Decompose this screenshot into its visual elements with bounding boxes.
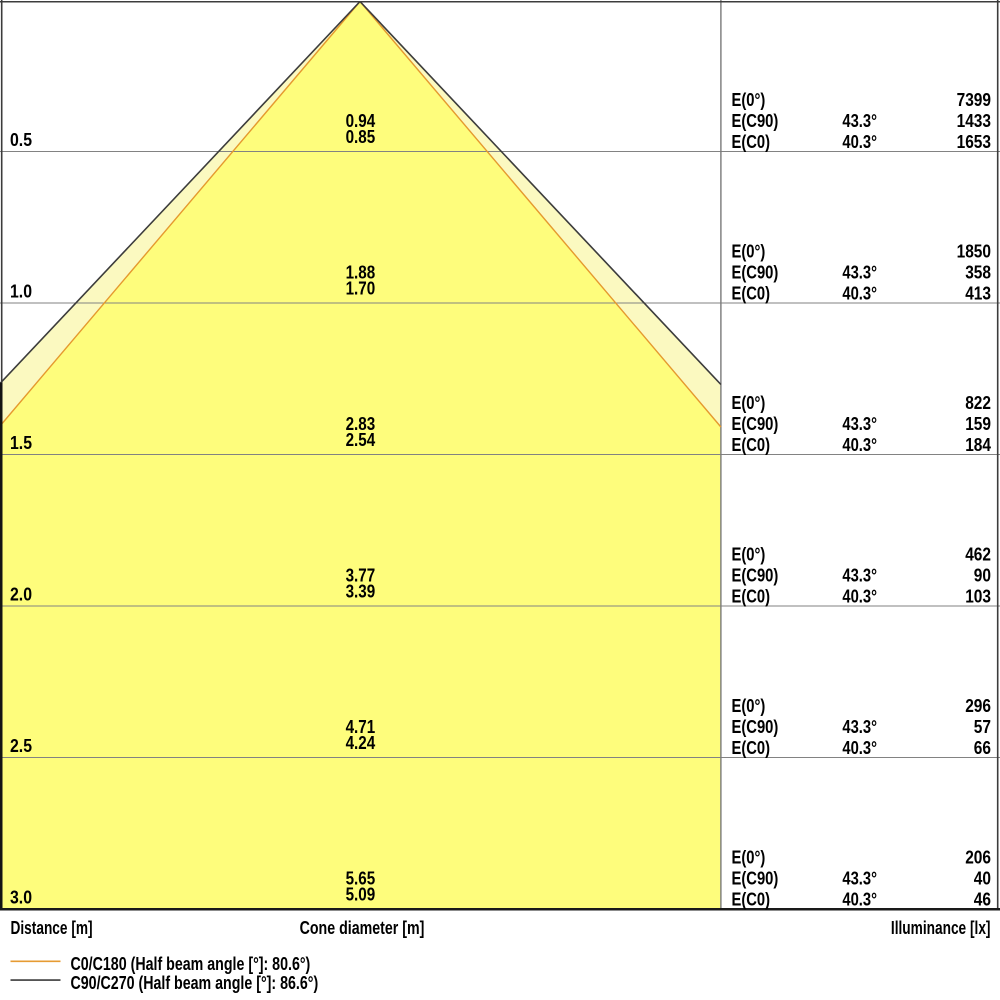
svg-text:40.3°: 40.3° (842, 284, 877, 304)
svg-text:E(0°): E(0°) (732, 848, 766, 868)
svg-text:358: 358 (965, 263, 991, 283)
svg-text:E(C90): E(C90) (732, 263, 779, 283)
svg-text:1.0: 1.0 (10, 282, 32, 302)
svg-text:462: 462 (965, 545, 991, 565)
svg-text:66: 66 (974, 738, 991, 758)
svg-text:E(C0): E(C0) (732, 890, 771, 910)
svg-text:43.3°: 43.3° (842, 869, 877, 889)
svg-text:E(C90): E(C90) (732, 717, 779, 737)
svg-text:E(0°): E(0°) (732, 90, 766, 110)
svg-text:296: 296 (965, 696, 991, 716)
svg-text:40.3°: 40.3° (842, 890, 877, 910)
svg-text:159: 159 (965, 414, 991, 434)
svg-text:40.3°: 40.3° (842, 435, 877, 455)
svg-text:0.5: 0.5 (10, 130, 32, 150)
svg-text:40.3°: 40.3° (842, 132, 877, 152)
svg-text:40.3°: 40.3° (842, 587, 877, 607)
svg-text:43.3°: 43.3° (842, 717, 877, 737)
svg-text:3.39: 3.39 (346, 582, 376, 602)
svg-text:E(0°): E(0°) (732, 696, 766, 716)
svg-text:Distance [m]: Distance [m] (11, 918, 93, 938)
svg-text:206: 206 (965, 848, 991, 868)
svg-text:E(0°): E(0°) (732, 545, 766, 565)
svg-text:43.3°: 43.3° (842, 111, 877, 131)
svg-text:90: 90 (974, 566, 991, 586)
svg-text:Cone diameter [m]: Cone diameter [m] (300, 918, 425, 938)
svg-text:822: 822 (965, 393, 991, 413)
svg-text:57: 57 (974, 717, 991, 737)
svg-text:2.5: 2.5 (10, 736, 32, 756)
svg-text:43.3°: 43.3° (842, 566, 877, 586)
svg-text:E(C0): E(C0) (732, 132, 771, 152)
svg-text:43.3°: 43.3° (842, 263, 877, 283)
svg-text:40.3°: 40.3° (842, 738, 877, 758)
svg-text:4.24: 4.24 (346, 733, 376, 753)
svg-text:7399: 7399 (957, 90, 991, 110)
svg-text:E(0°): E(0°) (732, 393, 766, 413)
svg-text:2.0: 2.0 (10, 585, 32, 605)
svg-text:E(C90): E(C90) (732, 111, 779, 131)
svg-text:103: 103 (965, 587, 991, 607)
svg-text:46: 46 (974, 890, 991, 910)
svg-text:1.70: 1.70 (346, 279, 376, 299)
svg-text:E(C0): E(C0) (732, 587, 771, 607)
svg-text:E(C0): E(C0) (732, 738, 771, 758)
svg-text:E(C0): E(C0) (732, 435, 771, 455)
svg-text:1653: 1653 (957, 132, 991, 152)
svg-text:184: 184 (965, 435, 991, 455)
svg-text:43.3°: 43.3° (842, 414, 877, 434)
svg-text:E(C90): E(C90) (732, 869, 779, 889)
svg-text:C0/C180 (Half beam angle [°]:: C0/C180 (Half beam angle [°]: 80.6°) (71, 954, 311, 974)
svg-text:E(0°): E(0°) (732, 242, 766, 262)
svg-text:3.0: 3.0 (10, 888, 32, 908)
svg-text:1.5: 1.5 (10, 433, 32, 453)
svg-text:2.54: 2.54 (346, 430, 376, 450)
svg-text:1850: 1850 (957, 242, 991, 262)
svg-text:413: 413 (965, 284, 991, 304)
svg-text:E(C90): E(C90) (732, 414, 779, 434)
svg-text:0.85: 0.85 (346, 127, 376, 147)
svg-text:Illuminance [lx]: Illuminance [lx] (891, 918, 991, 938)
svg-text:E(C0): E(C0) (732, 284, 771, 304)
svg-text:1433: 1433 (957, 111, 991, 131)
svg-text:40: 40 (974, 869, 991, 889)
svg-text:E(C90): E(C90) (732, 566, 779, 586)
svg-text:C90/C270 (Half beam angle [°]:: C90/C270 (Half beam angle [°]: 86.6°) (71, 973, 319, 993)
svg-text:5.09: 5.09 (346, 885, 376, 905)
